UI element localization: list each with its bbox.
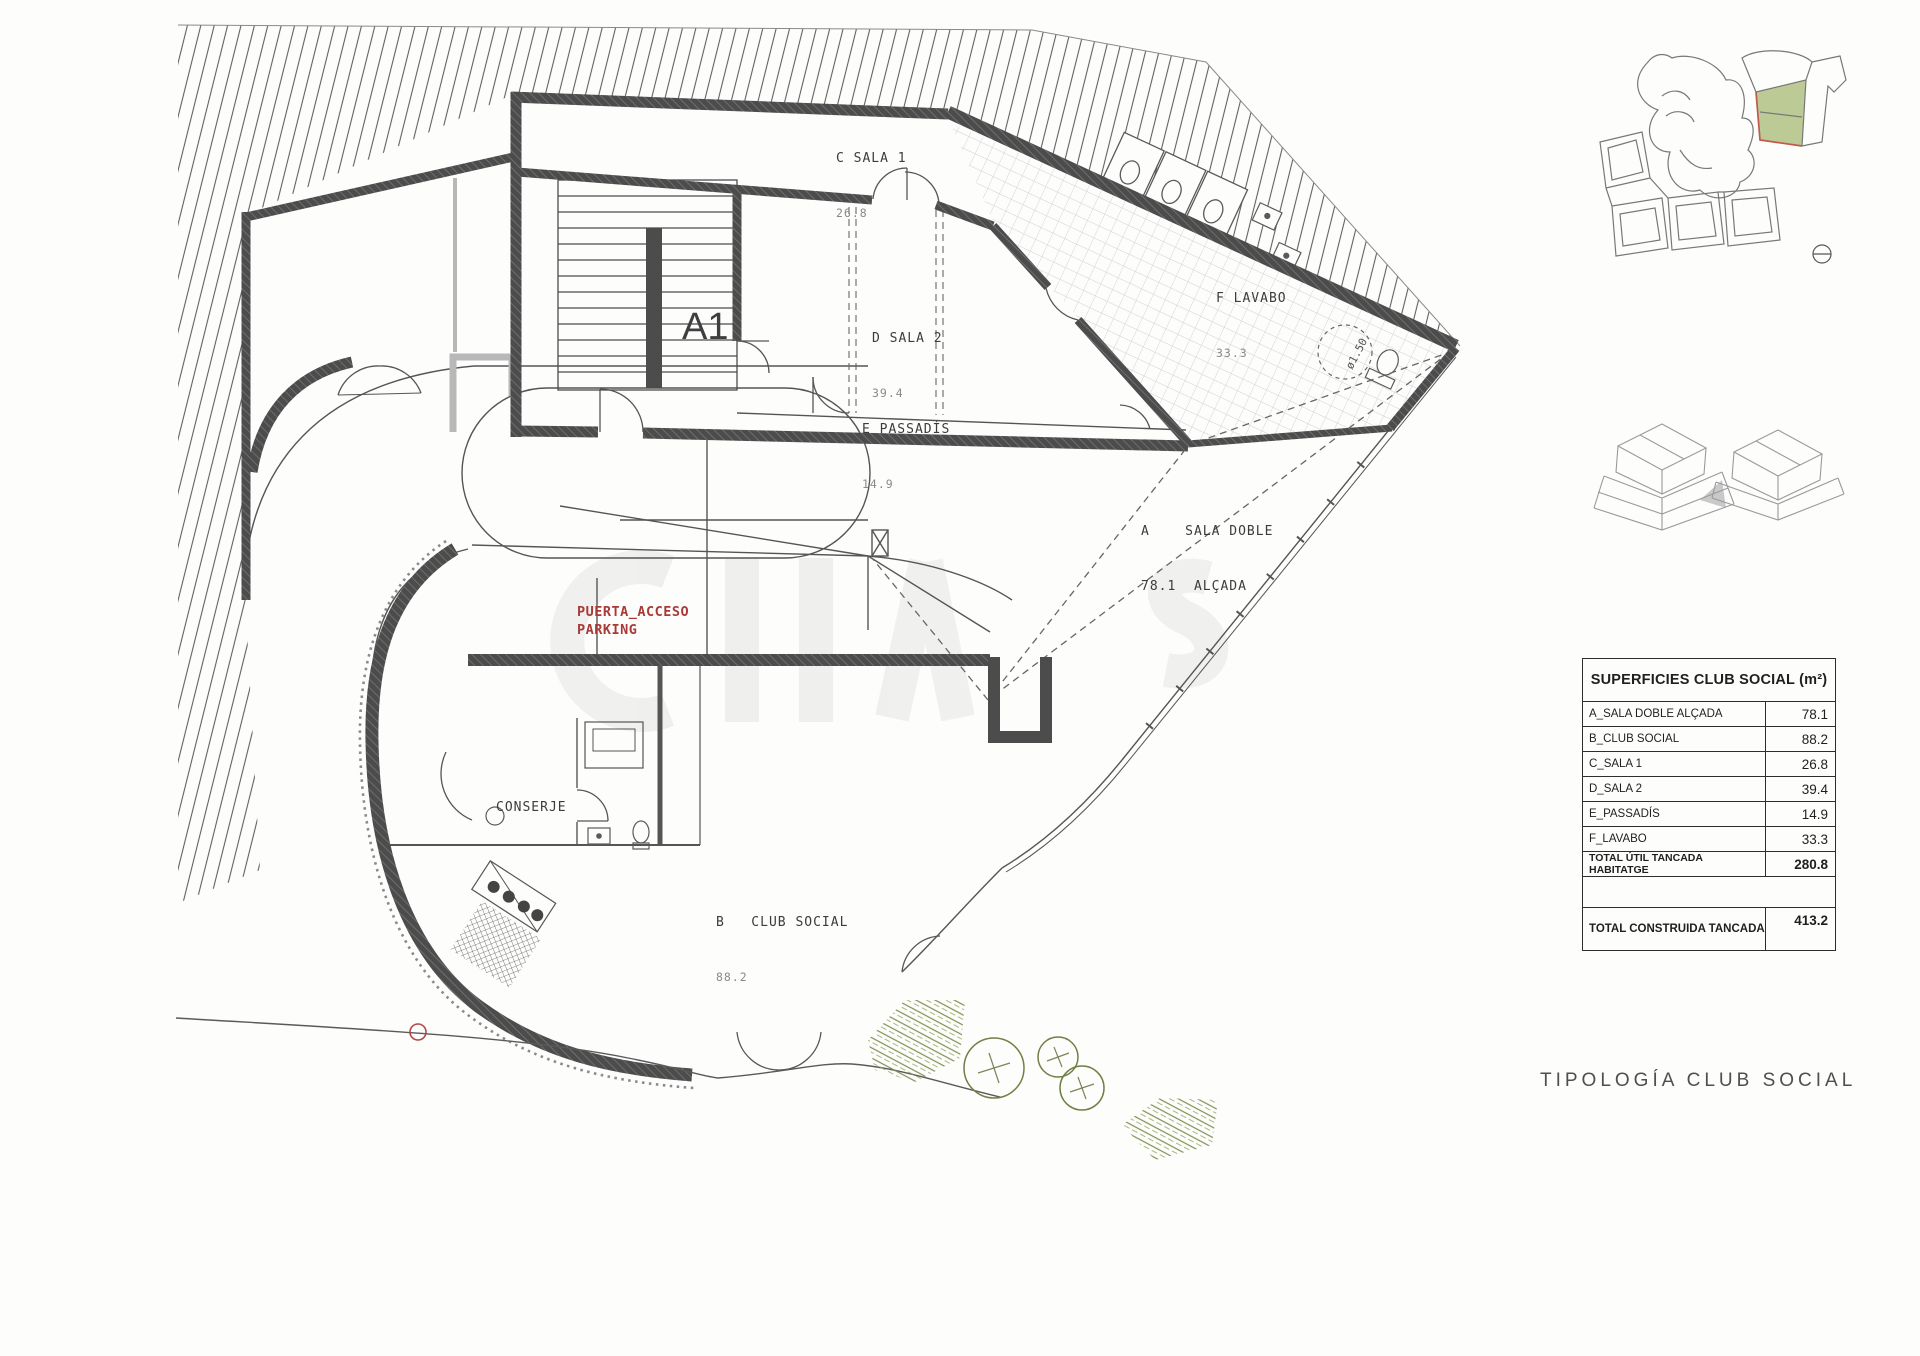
table-row-total-construida: TOTAL CONSTRUIDA TANCADA 413.2 [1583,907,1835,950]
room-area: 78.1 ALÇADA [1141,578,1273,596]
room-label-b-club-social: B CLUB SOCIAL 88.2 [716,878,848,1021]
table-row: C_SALA 1 26.8 [1583,751,1835,776]
row-label: F_LAVABO [1583,827,1765,851]
sheet-typology-title: TIPOLOGÍA CLUB SOCIAL [1540,1070,1856,1092]
parking-access-label: PUERTA_ACCESO PARKING [577,604,689,639]
row-value: 14.9 [1765,802,1835,826]
row-label: A_SALA DOBLE ALÇADA [1583,702,1765,726]
room-area: 26.8 [836,205,907,221]
wall-niche [988,657,1052,743]
landscape [176,1000,1218,1160]
axonometric-inset [1594,424,1844,530]
site-plan-inset [1600,51,1846,263]
unit-label-a1: A1 [682,306,728,349]
room-name: B CLUB SOCIAL [716,914,848,932]
parking-access-line2: PARKING [577,622,689,640]
vegetation-patch [868,1000,965,1082]
room-area: 14.9 [862,476,950,492]
parking-access-line1: PUERTA_ACCESO [577,604,689,622]
room-area: 33.3 [1216,345,1287,361]
survey-marker [410,1024,426,1040]
room-name: CONSERJE [496,799,567,817]
table-row: A_SALA DOBLE ALÇADA 78.1 [1583,701,1835,726]
room-label-c-sala-1: C SALA 1 26.8 [836,114,907,257]
room-name: D SALA 2 [872,330,943,348]
row-value: 413.2 [1765,908,1835,950]
row-label: E_PASSADÍS [1583,802,1765,826]
row-label: TOTAL CONSTRUIDA TANCADA [1583,908,1765,950]
staircase [558,180,737,390]
room-name: C SALA 1 [836,150,907,168]
row-label: TOTAL ÚTIL TANCADA HABITATGE [1583,852,1765,876]
room-area: 88.2 [716,969,848,985]
surface-summary-table: SUPERFICIES CLUB SOCIAL (m²) A_SALA DOBL… [1582,658,1836,951]
room-name: E PASSADÍS [862,421,950,439]
room-label-e-passadis: E PASSADÍS 14.9 [862,385,950,528]
room-label-f-lavabo: F LAVABO 33.3 [1216,254,1287,397]
row-value: 280.8 [1765,852,1835,876]
floor-plan-sheet: ø1.50 [0,0,1920,1356]
row-value: 26.8 [1765,752,1835,776]
row-value: 78.1 [1765,702,1835,726]
table-row: E_PASSADÍS 14.9 [1583,801,1835,826]
room-label-a-sala-doble: A SALA DOBLE 78.1 ALÇADA [1141,487,1273,633]
watermark [567,558,1211,722]
table-row: D_SALA 2 39.4 [1583,776,1835,801]
kitchen [438,861,562,988]
table-row-total-util: TOTAL ÚTIL TANCADA HABITATGE 280.8 [1583,851,1835,876]
row-value: 33.3 [1765,827,1835,851]
vegetation-patch [1122,1098,1218,1160]
room-name: A SALA DOBLE [1141,523,1273,541]
trees [964,1037,1104,1110]
row-value: 39.4 [1765,777,1835,801]
room-name: F LAVABO [1216,290,1287,308]
upper-level-walls [453,178,512,432]
north-symbol [1813,245,1831,263]
table-row: F_LAVABO 33.3 [1583,826,1835,851]
table-row: B_CLUB SOCIAL 88.2 [1583,726,1835,751]
row-label: C_SALA 1 [1583,752,1765,776]
table-title: SUPERFICIES CLUB SOCIAL (m²) [1583,659,1835,701]
row-label: D_SALA 2 [1583,777,1765,801]
row-value: 88.2 [1765,727,1835,751]
table-spacer [1583,876,1835,907]
row-label: B_CLUB SOCIAL [1583,727,1765,751]
room-label-conserje: CONSERJE [496,763,567,854]
